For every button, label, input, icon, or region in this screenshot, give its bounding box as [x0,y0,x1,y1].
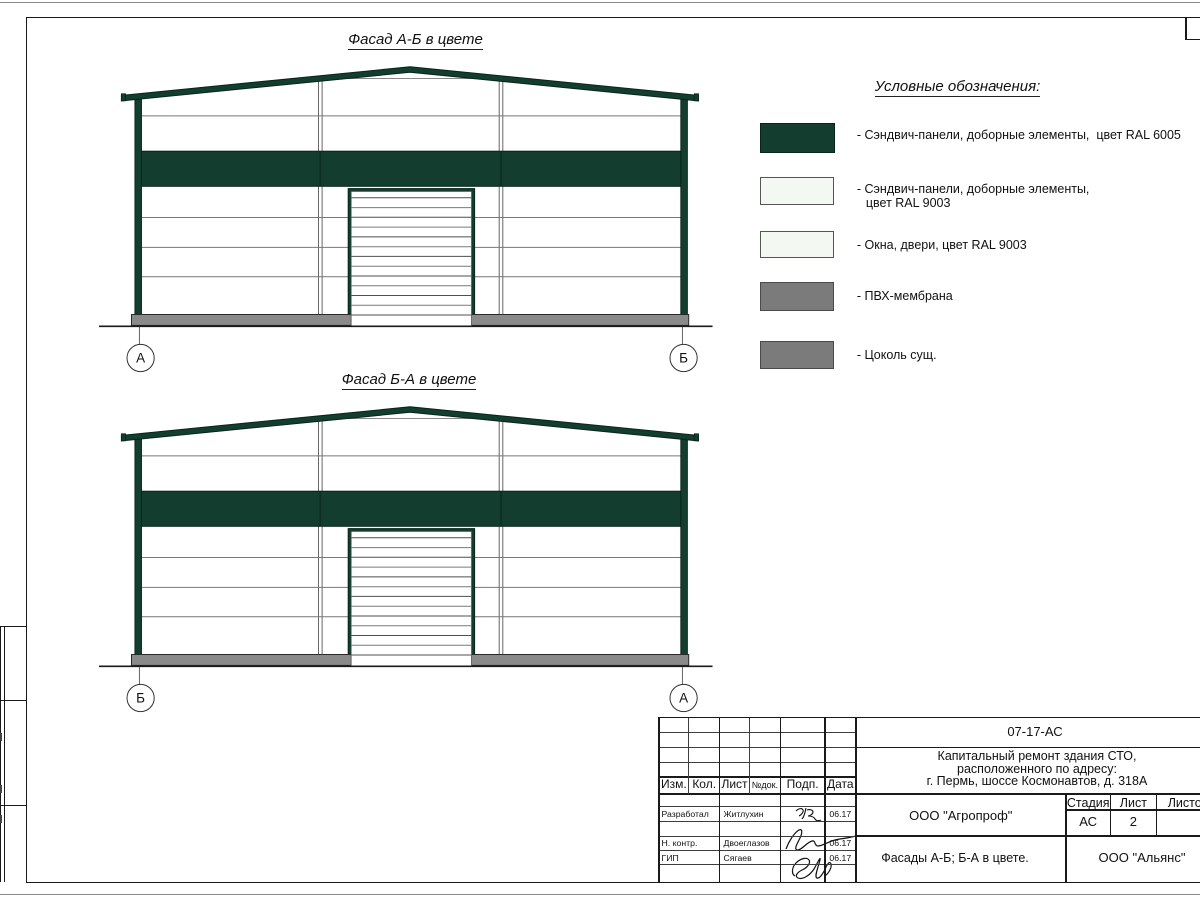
svg-text:А: А [136,351,145,366]
svg-text:Б: Б [136,691,145,706]
svg-text:Б: Б [679,351,688,366]
svg-text:А: А [679,691,688,706]
